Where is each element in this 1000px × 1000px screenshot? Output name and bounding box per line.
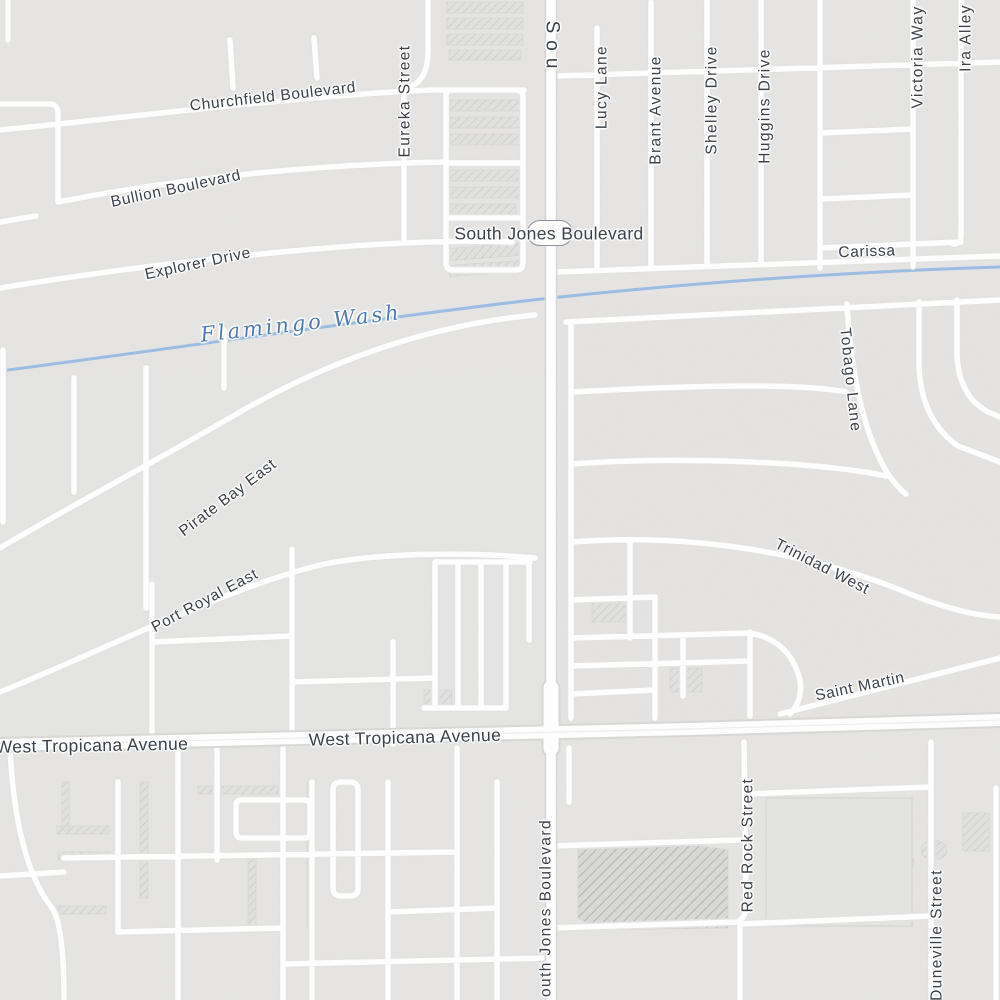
building: [198, 786, 278, 794]
road-label-huggins-drive: Huggins Drive: [757, 48, 773, 164]
map-canvas[interactable]: Churchfield Boulevard Bullion Boulevard …: [0, 0, 1000, 1000]
big-box-store-building: [578, 846, 728, 930]
road-label-duneville-street: Duneville Street: [929, 869, 945, 1000]
building: [450, 170, 520, 181]
road-label-south-jones-boulevard-bottom: outh Jones Boulevard: [538, 819, 554, 997]
large-building: [766, 798, 912, 926]
building: [62, 782, 69, 830]
road-label-carissa: Carissa: [838, 243, 896, 260]
road-label-eureka-street: Eureka Street: [397, 45, 413, 158]
building: [963, 813, 989, 851]
building: [450, 117, 520, 128]
building: [447, 18, 523, 29]
road-label-red-rock-street: Red Rock Street: [740, 778, 756, 913]
building: [449, 50, 521, 60]
building: [450, 204, 516, 214]
road-label-west-tropicana-avenue-left: West Tropicana Avenue: [0, 736, 188, 757]
building: [450, 187, 520, 198]
road-label-brant-avenue: Brant Avenue: [648, 55, 664, 165]
road-label-victoria-way: Victoria Way: [910, 6, 926, 109]
map-render: [0, 0, 1000, 1000]
road-label-shelley-drive: Shelley Drive: [704, 45, 720, 155]
building: [248, 856, 256, 928]
road-label-ira-alley: Ira Alley: [958, 4, 974, 72]
road-label-south-jones-boulevard: South Jones Boulevard: [454, 225, 643, 243]
building: [450, 134, 520, 145]
building: [140, 782, 148, 898]
road-label-lucy-lane: Lucy Lane: [594, 45, 610, 129]
building: [450, 100, 520, 111]
road-label-south-jones-boulevard-top: Sou: [543, 21, 562, 76]
building: [447, 34, 523, 45]
building: [447, 2, 523, 13]
